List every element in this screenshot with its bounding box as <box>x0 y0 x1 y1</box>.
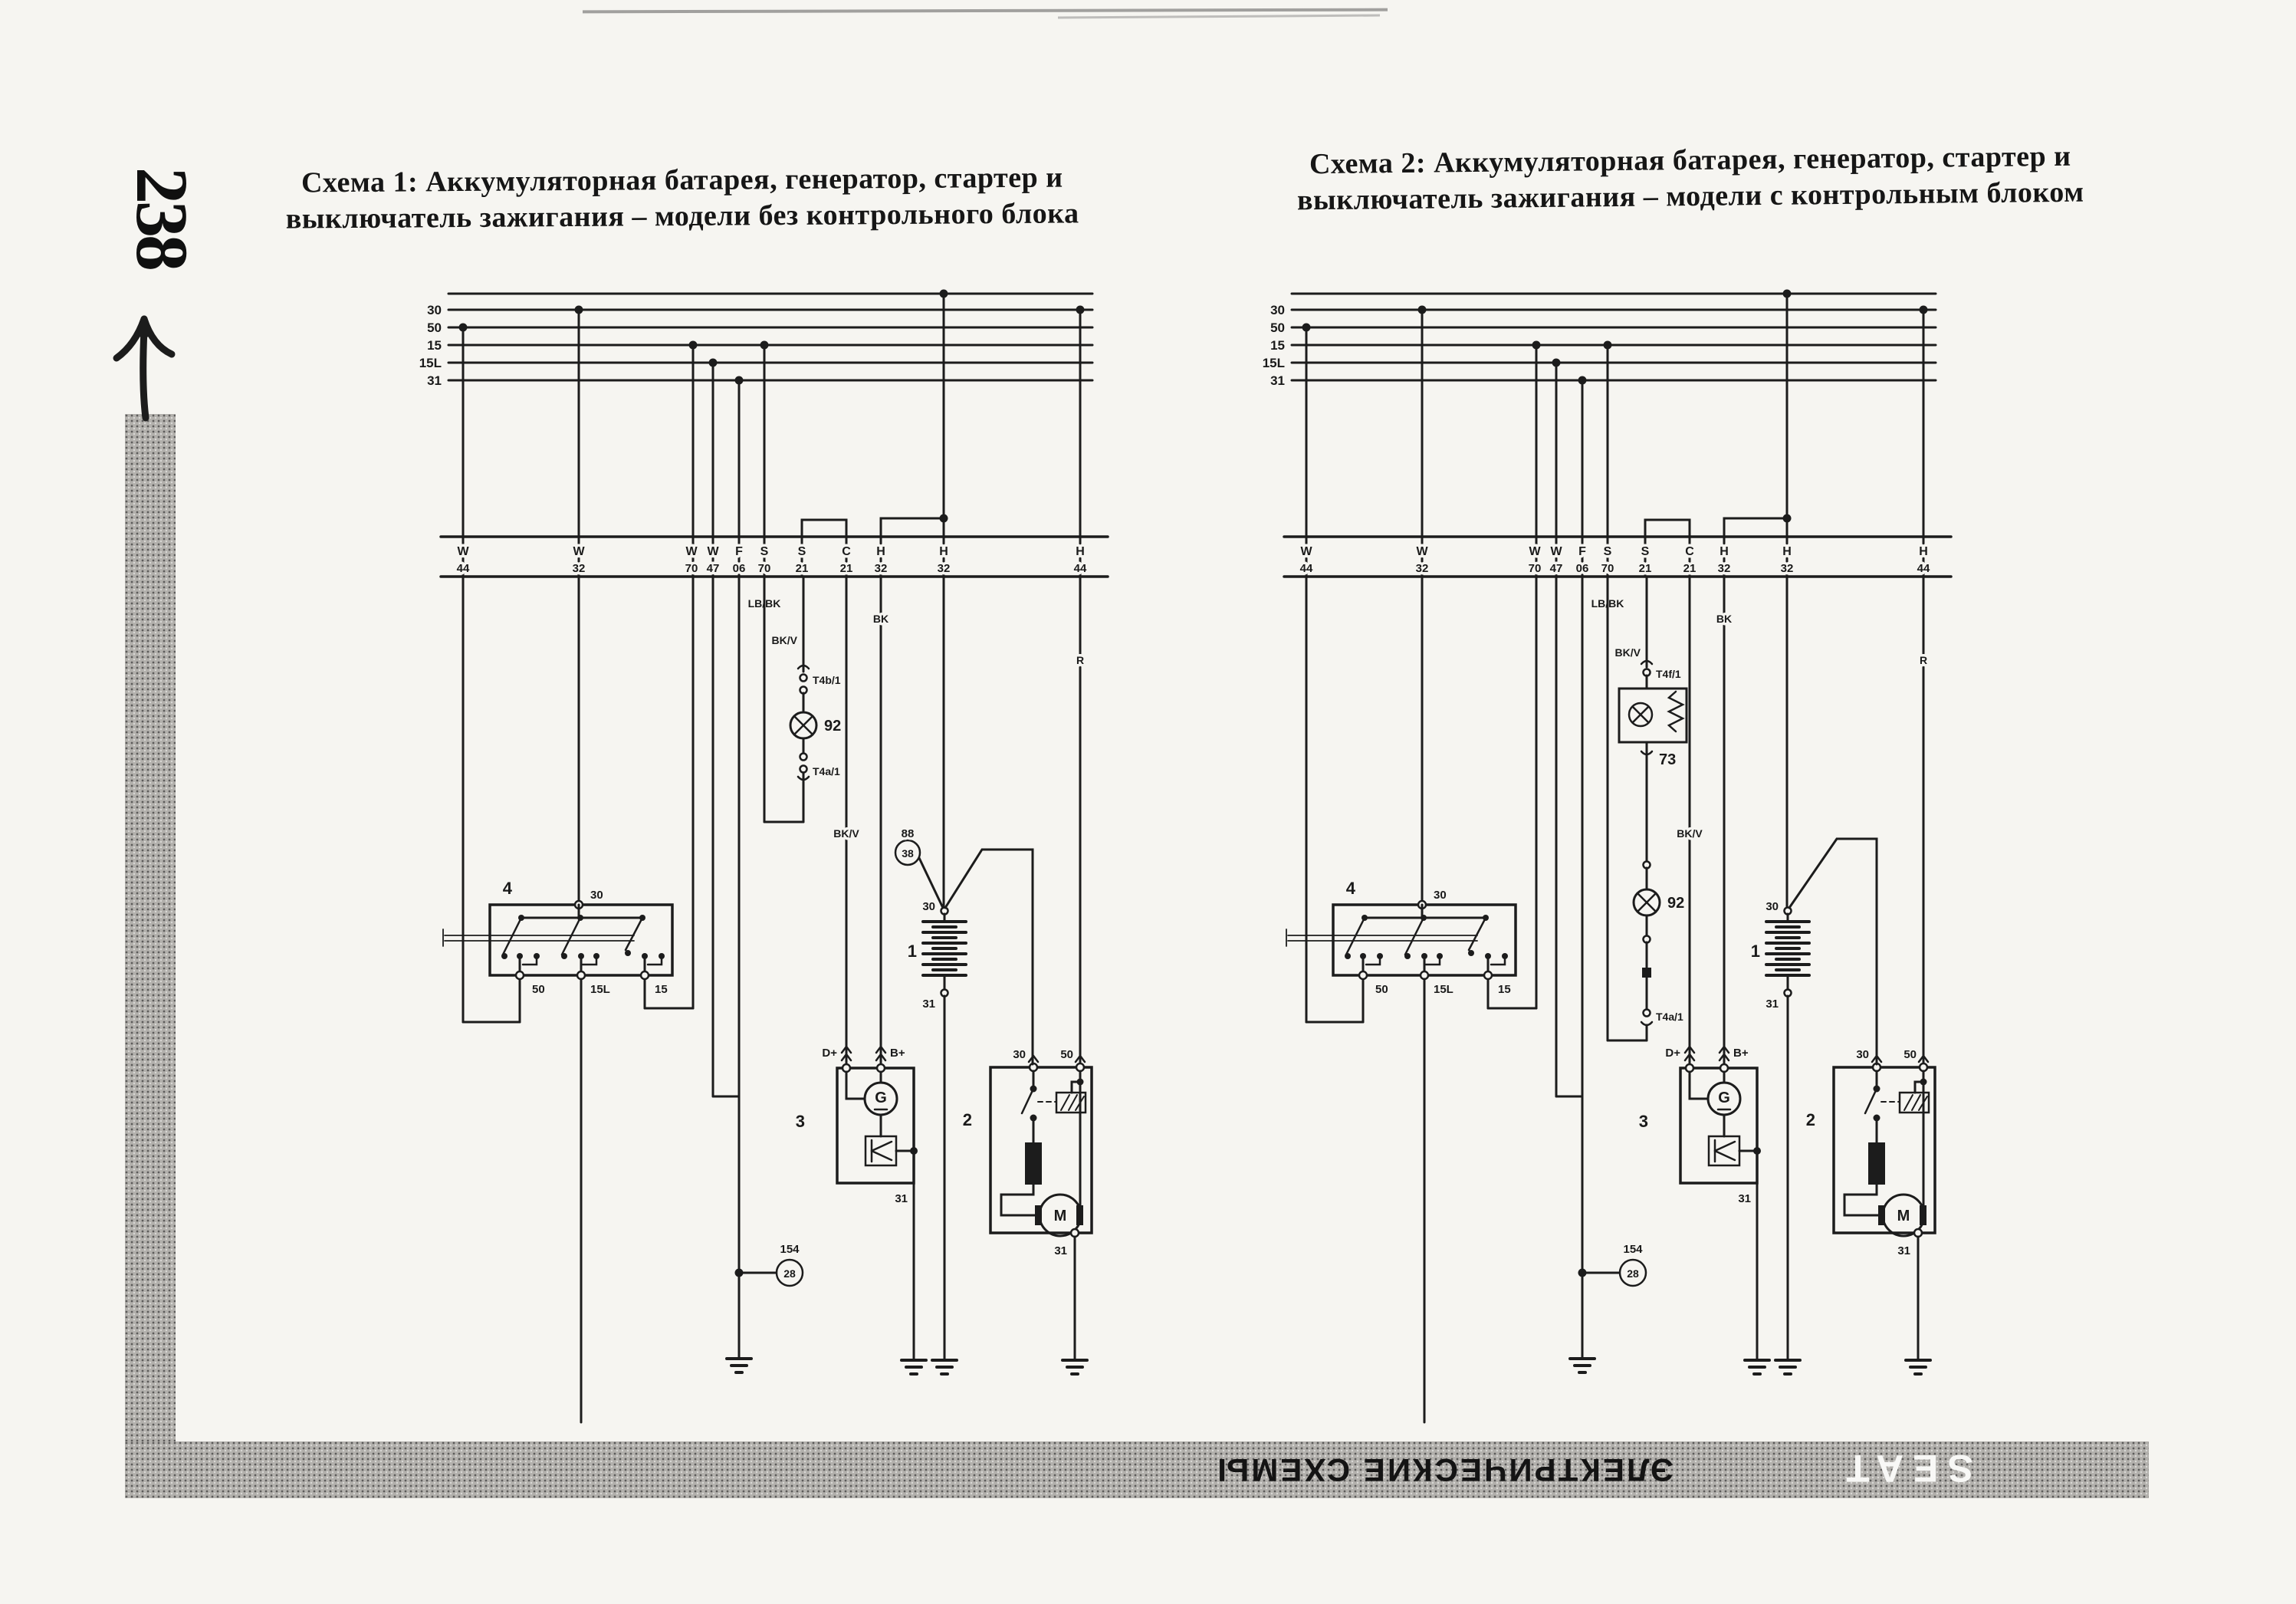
terminal-number: 06 <box>733 562 746 575</box>
ground-icon <box>727 1359 751 1372</box>
rectifier-symbol <box>866 1136 896 1165</box>
ground-connection-154: 28 154 <box>735 1243 803 1286</box>
page-arrow-icon <box>117 317 172 418</box>
battery-starter-feed <box>1789 839 1877 1064</box>
terminal-number: 47 <box>707 562 720 575</box>
battery-terminal-30: 30 <box>922 900 935 913</box>
scanned-manual-page: ЭЛЕКТРИЧЕСКИЕ СХЕМЫ SEAT 238 Схема 1: Ак… <box>0 0 2296 1604</box>
strip-jumper-1 <box>802 520 846 537</box>
generator-terminal-31: 31 <box>895 1192 908 1205</box>
bus-label-30: 30 <box>427 303 442 317</box>
winding-symbol <box>1025 1142 1042 1185</box>
component-id: 4 <box>503 879 513 898</box>
lamp-id: 92 <box>824 718 841 735</box>
ignition-switch: 4 30 <box>443 879 672 1422</box>
switch-terminal-30: 30 <box>590 889 603 902</box>
switch-terminal-15L: 15L <box>590 983 610 996</box>
terminal-letter: W <box>707 545 719 558</box>
terminal-letter: F <box>735 545 743 558</box>
resistor-symbol <box>1669 692 1683 731</box>
bus-label-31: 31 <box>427 373 442 388</box>
connector-label-t4b1: T4b/1 <box>813 674 841 686</box>
bus-label-50: 50 <box>427 320 442 335</box>
component-id: 2 <box>963 1110 972 1129</box>
ground-icon <box>902 1360 926 1374</box>
terminal-number: 44 <box>1074 562 1087 575</box>
control-unit-id: 73 <box>1659 751 1676 768</box>
diagram2-unique: BK/V T4f/1 73 <box>1608 577 1877 1064</box>
starter-terminal-30: 30 <box>1013 1048 1026 1061</box>
wire-label-bk: BK <box>873 613 889 625</box>
bus-drops <box>459 290 1085 385</box>
switch-terminal-50: 50 <box>532 983 545 996</box>
terminal-letter: H <box>939 545 948 558</box>
ground-code: 28 <box>783 1267 796 1280</box>
ground-icon <box>932 1360 957 1374</box>
lamp-92-icon <box>790 712 816 738</box>
terminal-letter: H <box>876 545 885 558</box>
bus-lines: 30 50 15 15L 31 <box>419 294 1092 388</box>
ground-id: 154 <box>780 1243 800 1256</box>
terminal-number: 44 <box>457 562 470 575</box>
warning-lamp-branch: BK/V T4b/1 92 T4a/1 <box>764 577 841 822</box>
component-id: 1 <box>908 942 917 961</box>
ground-icon <box>1063 1360 1087 1374</box>
motor-symbol: M <box>1054 1208 1067 1224</box>
bus-label-15: 15 <box>427 338 442 353</box>
wire-label-bkv: BK/V <box>1615 646 1641 659</box>
terminal-number: 70 <box>758 562 771 575</box>
terminal-number: 21 <box>840 562 853 575</box>
terminal-number: 70 <box>685 562 698 575</box>
terminal-labels: W 44 W 32 W 70 W 47 F 06 S 70 S 21 C 21 <box>457 545 1087 575</box>
terminal-letter: W <box>685 545 698 558</box>
connector-label-t4a1: T4a/1 <box>813 765 840 777</box>
terminal-number: 32 <box>573 562 586 575</box>
terminal-letter: S <box>760 545 769 558</box>
splice-code: 38 <box>902 847 914 860</box>
generator-terminal-bplus: B+ <box>890 1047 905 1060</box>
lamp-92-icon <box>1634 889 1660 915</box>
control-unit-branch: BK/V T4f/1 73 <box>1608 577 1687 1040</box>
terminal-number: 32 <box>875 562 888 575</box>
terminal-number: 21 <box>796 562 809 575</box>
connector-label-t4a1: T4a/1 <box>1656 1011 1683 1023</box>
diagram-common: 30 50 15 15L 31 <box>419 290 1108 1423</box>
wire-label-r: R <box>1076 654 1084 666</box>
starter-terminal-50: 50 <box>1060 1048 1073 1061</box>
terminal-strip: W 44 W 32 W 70 W 47 F 06 S 70 S 21 C 21 <box>441 514 1108 577</box>
connector-label-t4f1: T4f/1 <box>1656 668 1681 680</box>
bus-label-15L: 15L <box>419 356 442 370</box>
battery-terminal-31: 31 <box>922 998 935 1011</box>
strip-jumper-2 <box>881 518 944 537</box>
switch-mechanical-link <box>443 929 634 946</box>
starter-motor: 2 30 50 <box>963 1048 1092 1359</box>
wires-bus-to-strip <box>463 294 1080 1357</box>
terminal-letter: C <box>842 545 851 558</box>
terminal-letter: H <box>1076 545 1085 558</box>
terminal-number: 32 <box>938 562 951 575</box>
terminal-letter: S <box>798 545 806 558</box>
switch-terminal-15: 15 <box>655 983 668 996</box>
generator: 3 D+ B+ G <box>796 1047 918 1359</box>
control-unit-73 <box>1619 689 1687 742</box>
diagram1-unique: BK/V T4b/1 92 T4a/1 <box>764 577 1033 1064</box>
generator-terminal-dplus: D+ <box>822 1047 837 1060</box>
terminal-letter: W <box>573 545 585 558</box>
wire-label-bkv: BK/V <box>772 634 798 646</box>
starter-terminal-31: 31 <box>1054 1244 1067 1257</box>
component-id: 3 <box>796 1112 805 1131</box>
terminal-letter: W <box>457 545 469 558</box>
generator-symbol: G <box>875 1090 887 1106</box>
splice-id: 88 <box>902 827 915 840</box>
wire-label-bkv: BK/V <box>833 827 859 840</box>
wiring-diagrams-svg: 30 50 15 15L 31 <box>0 0 2296 1604</box>
lamp-id: 92 <box>1667 895 1684 912</box>
inline-element <box>1642 968 1651 978</box>
battery: 30 1 31 <box>908 900 966 1359</box>
